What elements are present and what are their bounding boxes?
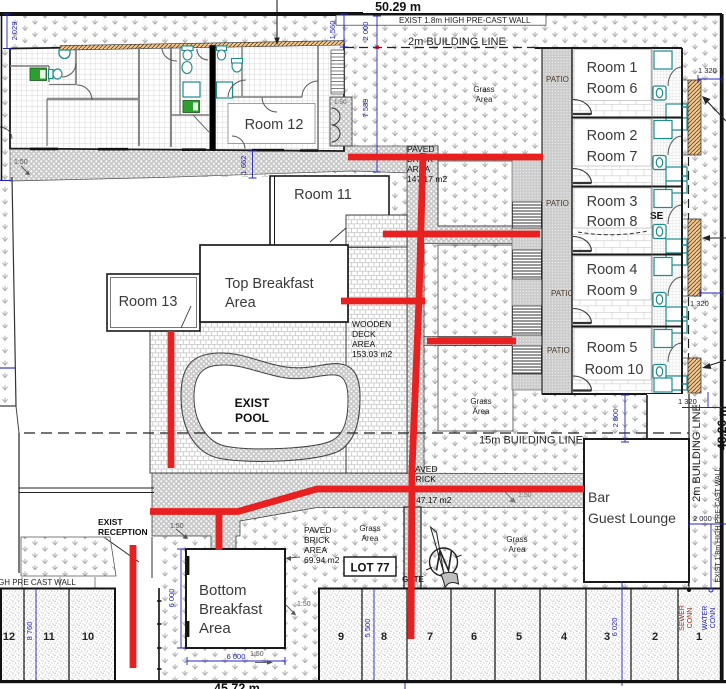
svg-text:Room 6: Room 6 — [587, 81, 638, 97]
svg-text:45.72 m: 45.72 m — [214, 682, 260, 689]
svg-text:BRICK: BRICK — [304, 535, 330, 545]
svg-text:Room 1: Room 1 — [587, 60, 638, 76]
svg-text:7 589: 7 589 — [361, 99, 370, 118]
svg-text:AREA: AREA — [304, 545, 327, 555]
svg-text:2: 2 — [652, 631, 658, 643]
svg-text:DECK: DECK — [352, 329, 376, 339]
svg-text:Grass: Grass — [473, 85, 494, 94]
svg-text:1:50: 1:50 — [14, 159, 28, 166]
svg-text:AREA: AREA — [352, 339, 375, 349]
svg-text:1 320: 1 320 — [698, 66, 717, 75]
svg-text:Room 4: Room 4 — [587, 262, 638, 278]
svg-text:9: 9 — [338, 631, 344, 643]
svg-text:Room 13: Room 13 — [119, 294, 178, 310]
svg-text:2 000: 2 000 — [693, 514, 712, 523]
svg-text:Room 9: Room 9 — [587, 283, 638, 299]
svg-text:2 000: 2 000 — [361, 22, 370, 41]
svg-text:GH PRE CAST WALL: GH PRE CAST WALL — [0, 578, 76, 587]
svg-text:1 320: 1 320 — [678, 397, 697, 406]
svg-text:12: 12 — [3, 631, 15, 643]
svg-text:15m BUILDING LINE: 15m BUILDING LINE — [479, 435, 583, 447]
svg-text:Room 5: Room 5 — [587, 340, 638, 356]
svg-text:POOL: POOL — [235, 411, 269, 425]
svg-text:5 500: 5 500 — [363, 619, 372, 638]
svg-text:Grass: Grass — [506, 535, 527, 544]
svg-text:1 320: 1 320 — [690, 299, 709, 308]
svg-text:PAVED: PAVED — [304, 525, 332, 535]
svg-text:8: 8 — [381, 631, 387, 643]
svg-text:5: 5 — [516, 631, 522, 643]
svg-text:EXIST 1.8m HIGH PRE-CAST WALL: EXIST 1.8m HIGH PRE-CAST WALL — [399, 16, 531, 25]
svg-text:Guest Lounge: Guest Lounge — [588, 510, 676, 526]
svg-text:Top Breakfast: Top Breakfast — [225, 276, 314, 292]
svg-text:47.17 m2: 47.17 m2 — [416, 495, 452, 505]
svg-text:1 662: 1 662 — [239, 156, 248, 175]
svg-text:6: 6 — [471, 631, 477, 643]
svg-text:Area: Area — [509, 545, 526, 554]
svg-text:2m BUILDING LINE: 2m BUILDING LINE — [691, 404, 703, 502]
svg-text:SEWER: SEWER — [679, 605, 686, 631]
svg-text:Room 10: Room 10 — [585, 362, 644, 378]
svg-text:Room 12: Room 12 — [245, 117, 304, 133]
svg-text:EXIST: EXIST — [235, 396, 270, 410]
svg-text:Area: Area — [225, 295, 257, 311]
svg-text:1: 1 — [696, 631, 702, 643]
svg-text:Bottom: Bottom — [199, 582, 247, 599]
svg-text:147.17 m2: 147.17 m2 — [407, 174, 447, 184]
svg-text:LOT 77: LOT 77 — [351, 563, 390, 575]
svg-text:PATIO: PATIO — [547, 346, 570, 355]
svg-text:10: 10 — [82, 631, 94, 643]
svg-text:2 029: 2 029 — [10, 22, 19, 41]
svg-text:8 760: 8 760 — [25, 622, 34, 641]
svg-text:1 560: 1 560 — [328, 21, 337, 40]
svg-text:Room 7: Room 7 — [587, 149, 638, 165]
svg-text:153.03 m2: 153.03 m2 — [352, 349, 392, 359]
svg-text:WOODEN: WOODEN — [352, 319, 391, 329]
svg-text:2 800: 2 800 — [611, 409, 620, 428]
svg-text:Room 2: Room 2 — [587, 128, 638, 144]
svg-text:PATIO: PATIO — [546, 199, 569, 208]
svg-text:WATER: WATER — [702, 606, 709, 631]
svg-text:PAVED: PAVED — [407, 144, 435, 154]
svg-text:1:50: 1:50 — [334, 99, 347, 106]
svg-text:Grass: Grass — [470, 397, 491, 406]
svg-text:Area: Area — [199, 620, 231, 637]
svg-text:Area: Area — [473, 407, 490, 416]
svg-text:1:50: 1:50 — [297, 601, 311, 608]
svg-text:AREA: AREA — [407, 164, 430, 174]
svg-text:Breakfast: Breakfast — [199, 601, 263, 618]
svg-text:6 000: 6 000 — [167, 589, 176, 608]
svg-text:EXIST: EXIST — [98, 517, 123, 527]
svg-text:Area: Area — [362, 534, 379, 543]
svg-text:PATIO: PATIO — [546, 75, 569, 84]
svg-text:6 000: 6 000 — [227, 652, 246, 661]
svg-text:2m BUILDING LINE: 2m BUILDING LINE — [408, 36, 506, 48]
svg-text:Bar: Bar — [588, 489, 610, 505]
svg-text:RECEPTION: RECEPTION — [98, 527, 148, 537]
svg-text:Grass: Grass — [359, 524, 380, 533]
svg-text:Room 3: Room 3 — [587, 194, 638, 210]
svg-text:PATIO: PATIO — [551, 289, 574, 298]
svg-text:4: 4 — [561, 631, 568, 643]
svg-text:CONN: CONN — [710, 608, 717, 629]
svg-text:11: 11 — [43, 631, 55, 643]
svg-text:Room 8: Room 8 — [587, 214, 638, 230]
svg-text:69.94 m2: 69.94 m2 — [304, 555, 340, 565]
svg-text:Room 11: Room 11 — [294, 187, 352, 203]
svg-text:50.29 m: 50.29 m — [375, 0, 421, 14]
svg-text:1:50: 1:50 — [250, 651, 264, 658]
svg-text:1:50: 1:50 — [170, 523, 184, 530]
svg-text:1:50: 1:50 — [518, 492, 532, 499]
svg-text:CONN: CONN — [687, 608, 694, 629]
svg-text:7: 7 — [427, 631, 433, 643]
svg-text:Area: Area — [476, 95, 493, 104]
svg-text:6 020: 6 020 — [610, 618, 619, 637]
